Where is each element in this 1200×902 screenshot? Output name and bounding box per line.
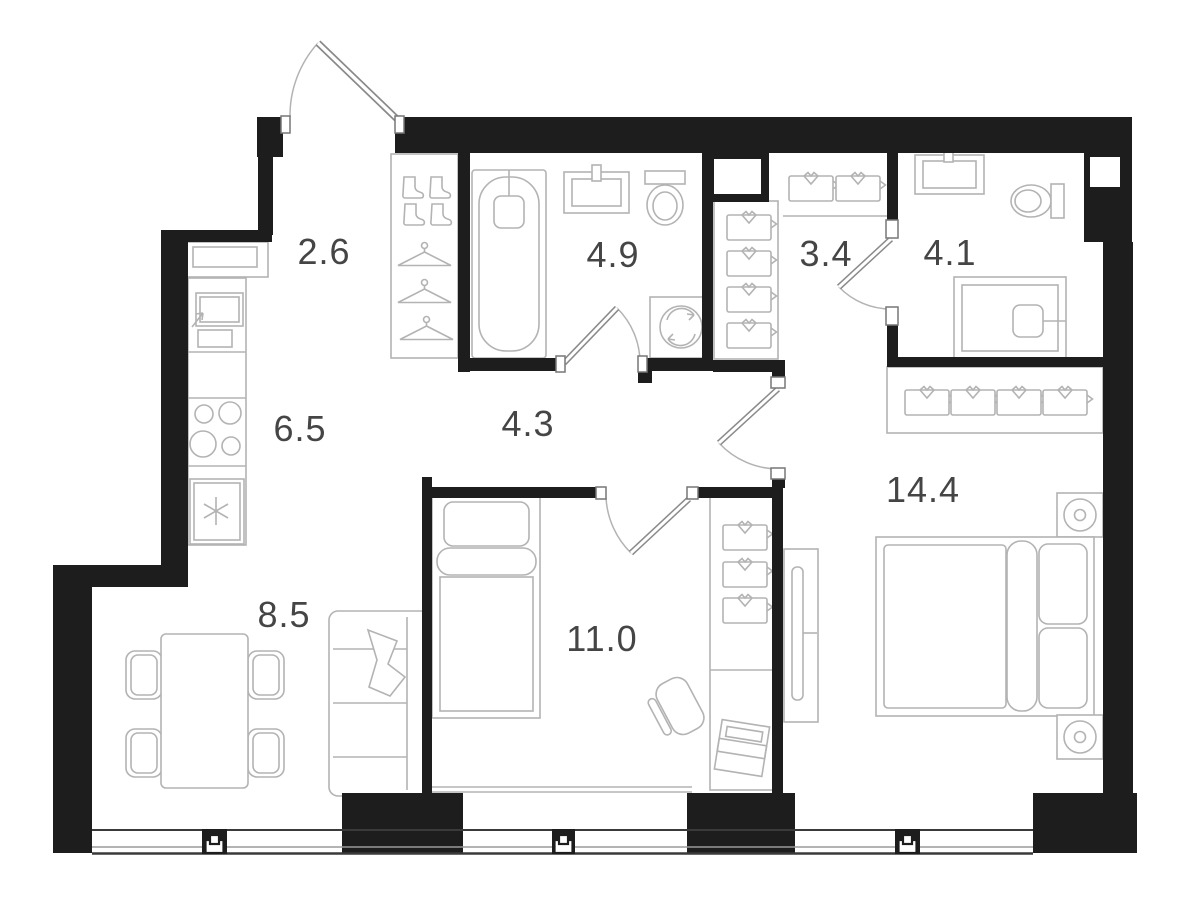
double-bed-icon — [876, 537, 1094, 716]
washing-machine-icon — [650, 297, 711, 358]
wall-room11-left — [422, 477, 432, 793]
window-pier — [687, 793, 795, 853]
bedroom-closet-icon — [887, 367, 1103, 433]
hangers-icon — [398, 243, 453, 340]
wall-top — [395, 117, 1132, 153]
wall-lower-left — [53, 587, 92, 853]
bathtub-icon — [472, 170, 546, 358]
wall-34-41 — [887, 325, 898, 358]
room-label-corridor: 4.3 — [501, 403, 554, 445]
bathroom-door-icon — [556, 308, 647, 372]
bedroom2-door-icon — [596, 487, 698, 553]
room-label-guest-bathroom: 4.1 — [923, 232, 976, 274]
window-band — [92, 829, 1033, 854]
wall-bath-bottom — [458, 358, 563, 371]
floor-plan-drawing — [0, 0, 1200, 902]
master-bedroom-door-icon — [719, 377, 785, 479]
wall-entry-column — [258, 155, 273, 235]
wall-room11-top — [697, 487, 773, 498]
wall-room11-top — [423, 487, 597, 498]
nightstand-icon — [1057, 493, 1103, 537]
room-label-kitchen: 6.5 — [273, 408, 326, 450]
nightstand-icon — [1057, 715, 1103, 759]
printer-icon — [714, 720, 769, 777]
wall-right — [1103, 242, 1133, 793]
chair-icon — [248, 651, 284, 699]
tv-unit-icon — [784, 549, 818, 722]
wc-toilet-icon — [1011, 184, 1064, 218]
room-label-inner-bathroom: 4.9 — [586, 234, 639, 276]
entrance-door-icon — [281, 43, 404, 133]
room-label-second-bedroom: 11.0 — [566, 618, 637, 660]
room-label-master-bedroom: 14.4 — [886, 469, 960, 511]
chair-icon — [126, 729, 162, 777]
duct-shaft-icon — [1090, 157, 1120, 187]
window-pier — [342, 793, 463, 853]
bath-sink-icon — [564, 165, 629, 213]
closet-top-shirts-icon — [783, 173, 887, 217]
sofa-icon — [329, 611, 431, 796]
single-bed-icon — [432, 496, 540, 718]
wall-topleft-step — [161, 230, 272, 242]
room-label-entry-hall: 2.6 — [297, 231, 350, 273]
dishwasher-icon — [190, 479, 244, 544]
duct-shaft-icon — [714, 159, 761, 194]
room-label-wardrobe-closet: 3.4 — [799, 233, 852, 275]
wall-bottom-right-block — [1033, 793, 1137, 853]
wall-41-bottom — [887, 357, 1105, 367]
toilet-icon — [645, 171, 685, 225]
floor-plan: 2.6 4.9 3.4 4.1 6.5 4.3 14.4 8.5 11.0 — [0, 0, 1200, 902]
window-sill-line — [432, 787, 692, 792]
wall-left — [161, 242, 188, 567]
closet-column-icon — [714, 201, 778, 359]
stove-icon — [190, 402, 241, 457]
wall-entry-column — [257, 117, 283, 157]
room-label-living-dining: 8.5 — [257, 594, 310, 636]
shower-icon — [954, 277, 1066, 359]
wall-34-41 — [887, 153, 898, 221]
wall-bath-left — [458, 153, 470, 372]
desk-chair-icon — [643, 673, 708, 743]
wc-sink-icon — [915, 148, 984, 194]
kitchen-cabinet-icon — [187, 242, 268, 277]
wall-bedrooms-divider — [772, 488, 783, 793]
chair-icon — [126, 651, 162, 699]
wall-left-step — [53, 565, 188, 587]
kitchen-sink-icon — [192, 293, 243, 347]
dining-table-icon — [161, 634, 248, 788]
chair-icon — [248, 729, 284, 777]
wall-bath-bottom — [647, 358, 713, 371]
